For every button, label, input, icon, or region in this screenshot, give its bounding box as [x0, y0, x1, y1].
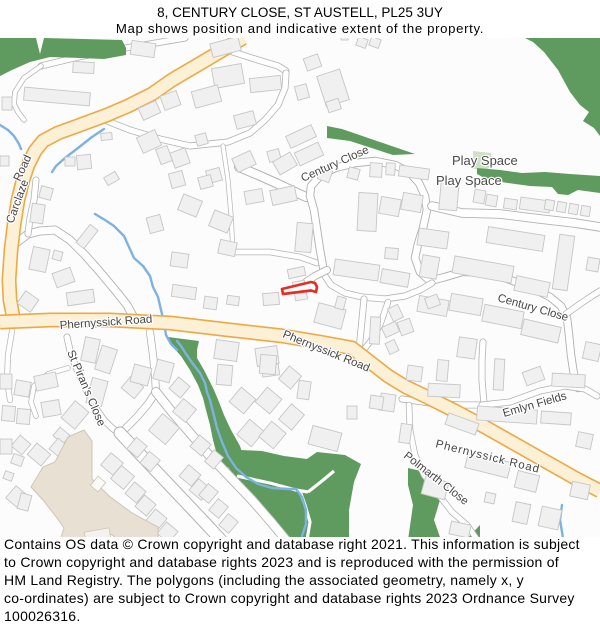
svg-text:Play Space: Play Space [452, 153, 518, 168]
svg-text:100026316.: 100026316. [4, 608, 80, 624]
svg-text:Play Space: Play Space [436, 173, 502, 188]
svg-text:HM Land Registry. The polygons: HM Land Registry. The polygons (includin… [4, 572, 524, 588]
svg-text:Map shows position and indicat: Map shows position and indicative extent… [116, 21, 484, 36]
svg-text:8, CENTURY CLOSE, ST AUSTELL,: 8, CENTURY CLOSE, ST AUSTELL, PL25 3UY [157, 5, 443, 20]
svg-text:Contains OS data © Crown copyr: Contains OS data © Crown copyright and d… [4, 536, 580, 552]
svg-text:co-ordinates) are subject to C: co-ordinates) are subject to Crown copyr… [4, 590, 575, 606]
svg-text:to Crown copyright and databas: to Crown copyright and database rights 2… [4, 554, 559, 570]
